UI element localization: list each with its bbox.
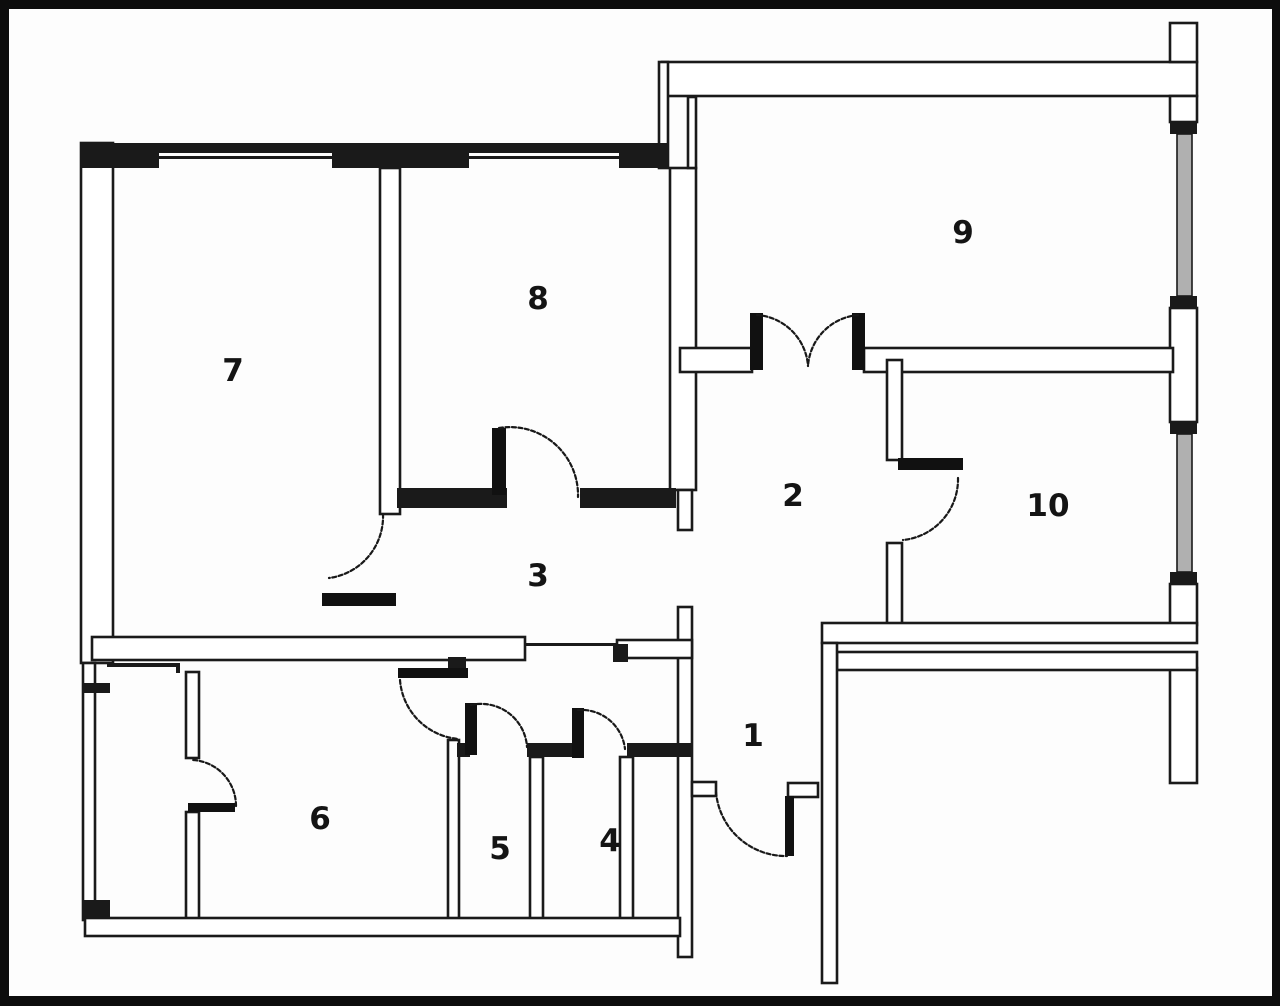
door-leaf-room8 <box>492 428 506 495</box>
door-leaf-room5 <box>465 703 477 755</box>
door-arc-room6 <box>400 680 459 739</box>
door-leaf-room7 <box>322 593 396 606</box>
room-label-9: 9 <box>952 215 974 251</box>
room-label-8: 8 <box>527 281 549 317</box>
window-room9 <box>1170 122 1197 308</box>
room-label-5: 5 <box>489 831 511 867</box>
door-arc-room9-left <box>757 315 808 366</box>
door-leaf-room9-left <box>750 313 763 370</box>
floor-plan-page: 1 2 3 4 5 6 7 8 9 10 <box>0 0 1280 1006</box>
floor-plan-drawing: 1 2 3 4 5 6 7 8 9 10 <box>0 0 1280 1006</box>
room-labels: 1 2 3 4 5 6 7 8 9 10 <box>222 215 1069 867</box>
door-leaf-room10 <box>898 458 963 470</box>
door-leaves <box>188 313 963 856</box>
window-room10 <box>1170 422 1197 584</box>
room-label-4: 4 <box>599 823 621 859</box>
room-label-2: 2 <box>782 478 804 514</box>
door-arc-room9-right <box>808 315 858 366</box>
door-leaf-closet <box>188 803 235 812</box>
door-arc-room4 <box>578 710 625 749</box>
door-leaf-room9-right <box>852 313 865 370</box>
room-label-7: 7 <box>222 353 244 389</box>
door-arc-room5 <box>471 704 527 747</box>
door-arc-room7 <box>329 514 383 578</box>
door-leaf-entry <box>785 796 794 856</box>
door-arc-room10 <box>903 478 958 540</box>
door-arc-room8 <box>499 427 578 497</box>
door-swing-arcs <box>193 315 958 856</box>
room-label-6: 6 <box>309 801 331 837</box>
door-leaf-room4 <box>572 708 584 758</box>
door-arc-closet <box>193 760 236 806</box>
door-leaf-room6 <box>398 668 468 678</box>
room-label-1: 1 <box>742 718 764 754</box>
door-arc-entry <box>716 792 787 856</box>
room-label-3: 3 <box>527 558 549 594</box>
room-label-10: 10 <box>1026 488 1069 524</box>
